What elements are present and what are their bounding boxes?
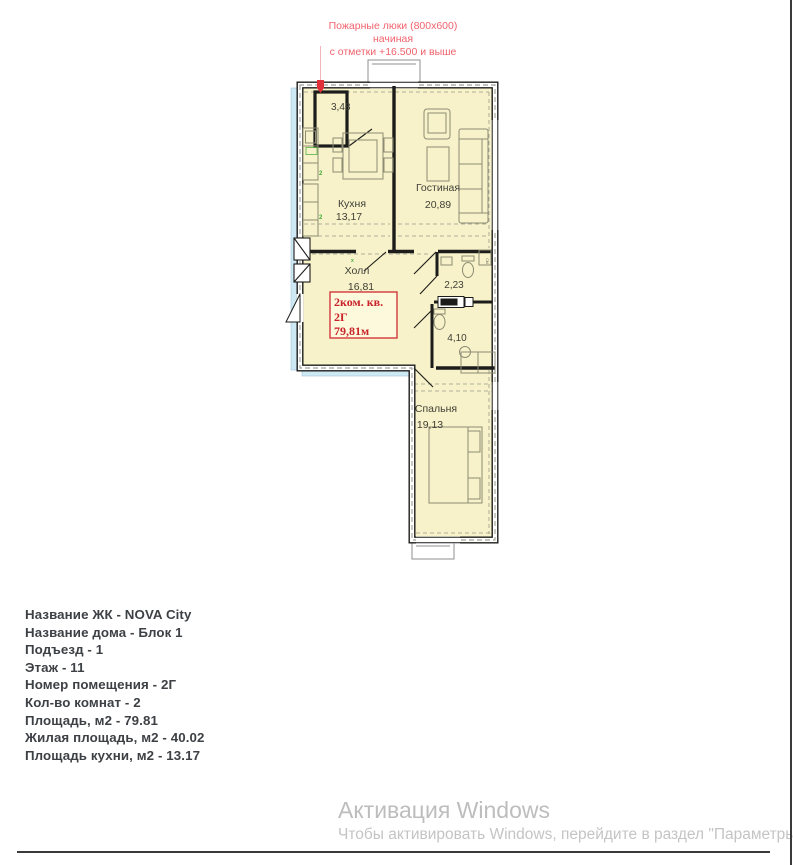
bottom-rule: [17, 851, 770, 853]
utility-shafts: [294, 238, 310, 282]
living-label: Гостиная: [416, 182, 460, 194]
windows-activation-subtitle: Чтобы активировать Windows, перейдите в …: [338, 826, 793, 844]
fire-hatch-note-line1: Пожарные люки (800х600) начиная: [310, 20, 476, 46]
info-line-building: Название дома - Блок 1: [25, 624, 205, 642]
info-line-living-area: Жилая площадь, м2 - 40.02: [25, 729, 205, 747]
info-line-total-area: Площадь, м2 - 79.81: [25, 712, 205, 730]
kitchen-area-label: 13,17: [336, 211, 362, 223]
unit-type-label: 2ком. кв.: [334, 295, 383, 309]
right-edge-rule: [790, 0, 792, 865]
hall-label: Холл: [345, 265, 370, 277]
living-area-label: 20,89: [425, 199, 451, 211]
info-line-rooms: Кол-во комнат - 2: [25, 694, 205, 712]
info-line-unit-number: Номер помещения - 2Г: [25, 676, 205, 694]
window-bedroom-right: [491, 382, 498, 410]
bath-shaft: [438, 297, 473, 308]
wc-area-label: 2,23: [444, 280, 464, 291]
info-line-entrance: Подъезд - 1: [25, 641, 205, 659]
screenshot-root: Пожарные люки (800х600) начиная с отметк…: [0, 0, 793, 865]
bathroom-area-label: 4,10: [447, 333, 467, 344]
window-living-right: [491, 120, 498, 230]
window-bedroom-bottom: [416, 536, 460, 543]
svg-text:х: х: [351, 258, 354, 264]
unit-info-box: 2ком. кв. 2Г 79,81м: [330, 292, 397, 338]
bedroom-label: Спальня: [415, 403, 457, 415]
kitchen-label: Кухня: [338, 198, 366, 210]
storage-area-label: 3,48: [331, 102, 351, 113]
floor-plan: 2 2 х 3,48 Кухня 13,17 Гостиная 20,89 Хо…: [283, 52, 513, 567]
info-line-floor: Этаж - 11: [25, 659, 205, 677]
windows-activation-title: Активация Windows: [338, 797, 550, 824]
unit-number-label: 2Г: [334, 310, 348, 324]
bedroom-area-label: 19,13: [417, 419, 443, 431]
info-line-kitchen-area: Площадь кухни, м2 - 13.17: [25, 747, 205, 765]
hall-area-label: 16,81: [348, 281, 374, 293]
info-line-complex: Название ЖК - NOVA City: [25, 606, 205, 624]
unit-area-label: 79,81м: [334, 324, 369, 338]
apartment-info-block: Название ЖК - NOVA City Название дома - …: [25, 606, 205, 764]
washer-label: СМ: [485, 258, 489, 264]
